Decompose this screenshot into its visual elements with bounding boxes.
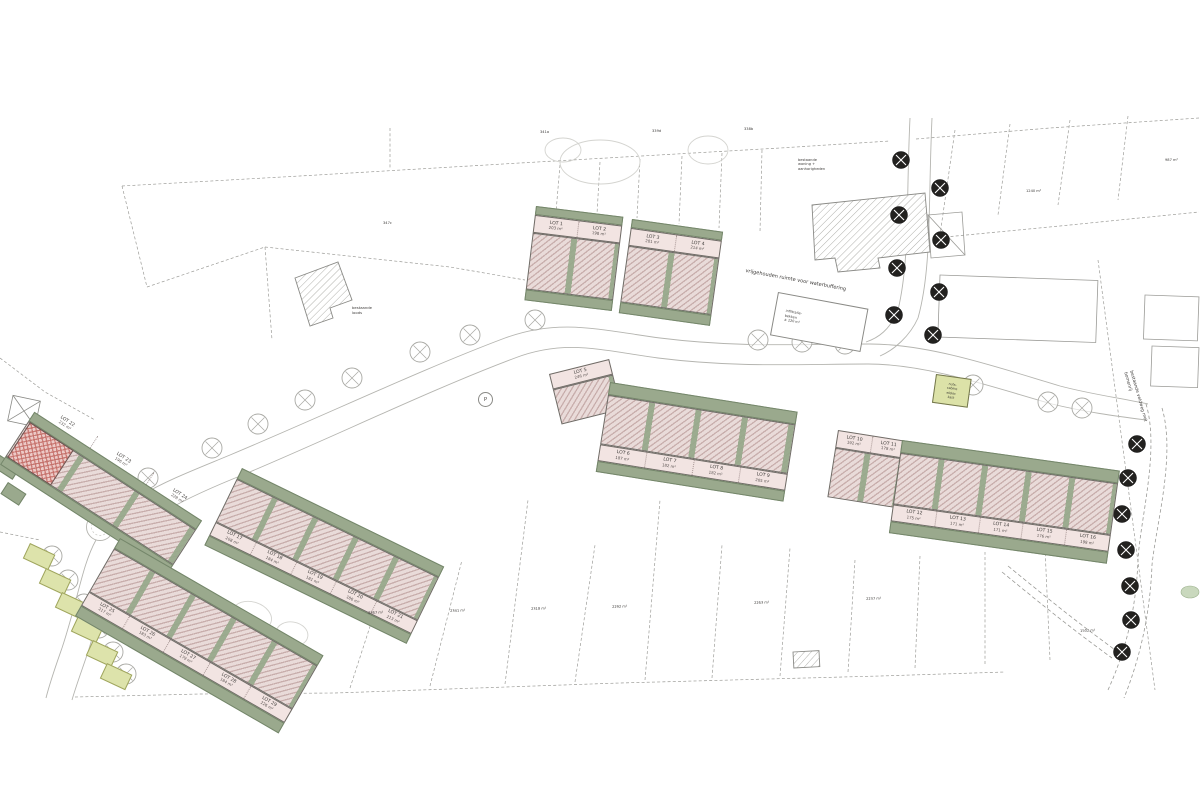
- existing-building-label: bestaande woning + aanhorigheden: [798, 158, 825, 171]
- parking-symbol: P: [478, 392, 493, 407]
- lot-area: 182 m²: [662, 463, 677, 470]
- field-area-label: 2237 m²: [866, 596, 881, 601]
- parcel-number: 341a: [540, 130, 549, 134]
- lot-area: 198 m²: [1080, 540, 1095, 547]
- field-area-label: 1502 m²: [1080, 628, 1095, 633]
- lot-area: 201 m²: [645, 240, 660, 247]
- lot-area: 178 m²: [880, 446, 895, 453]
- parcel-number: 339d: [652, 129, 661, 133]
- existing-building-label: bestaande loods: [352, 306, 372, 315]
- field-area-label: 2292 m²: [612, 604, 627, 609]
- field-area-label: 2318 m²: [531, 606, 546, 611]
- building-block: [526, 233, 620, 300]
- site-plan: LOT 1203 m² LOT 2198 m² LOT 3201 m² LOT …: [0, 0, 1200, 800]
- hedge-line: [1002, 566, 1118, 658]
- lot-area: 176 m²: [1036, 534, 1051, 541]
- house-row-a2: LOT 3201 m² LOT 4214 m²: [619, 219, 723, 326]
- parcel-number: 347c: [383, 221, 392, 225]
- lot-area: 182 m²: [708, 470, 723, 477]
- green-verge: [1181, 586, 1199, 598]
- lot-area: 171 m²: [993, 528, 1008, 535]
- existing-structure-outline: [928, 212, 1199, 388]
- lot-area: 214 m²: [690, 246, 705, 253]
- utility-cabin: nuts- cabine elektr. kast: [932, 374, 972, 408]
- lot-area: 187 m²: [615, 456, 630, 463]
- lot-area: 192 m²: [846, 441, 861, 448]
- parcel-number: 338b: [744, 127, 753, 131]
- lot-area: 175 m²: [906, 515, 921, 522]
- field-area-label: 2367 m²: [368, 610, 383, 615]
- lot-area: 171 m²: [950, 521, 965, 528]
- lot-area: 205 m²: [755, 478, 770, 485]
- buffer-note-text: infiltratie- bekken ± 120 m³: [784, 309, 803, 325]
- field-area-label: 1240 m²: [1026, 189, 1041, 193]
- cabin-text: kast: [947, 395, 954, 400]
- lot-area: 198 m²: [591, 231, 606, 238]
- field-area-label: 2263 m²: [754, 600, 769, 605]
- house-row-a1: LOT 1203 m² LOT 2198 m²: [524, 206, 623, 311]
- field-area-label: 987 m²: [1165, 158, 1178, 162]
- lot-area: 203 m²: [548, 226, 563, 233]
- field-area-label: 2341 m²: [450, 608, 465, 613]
